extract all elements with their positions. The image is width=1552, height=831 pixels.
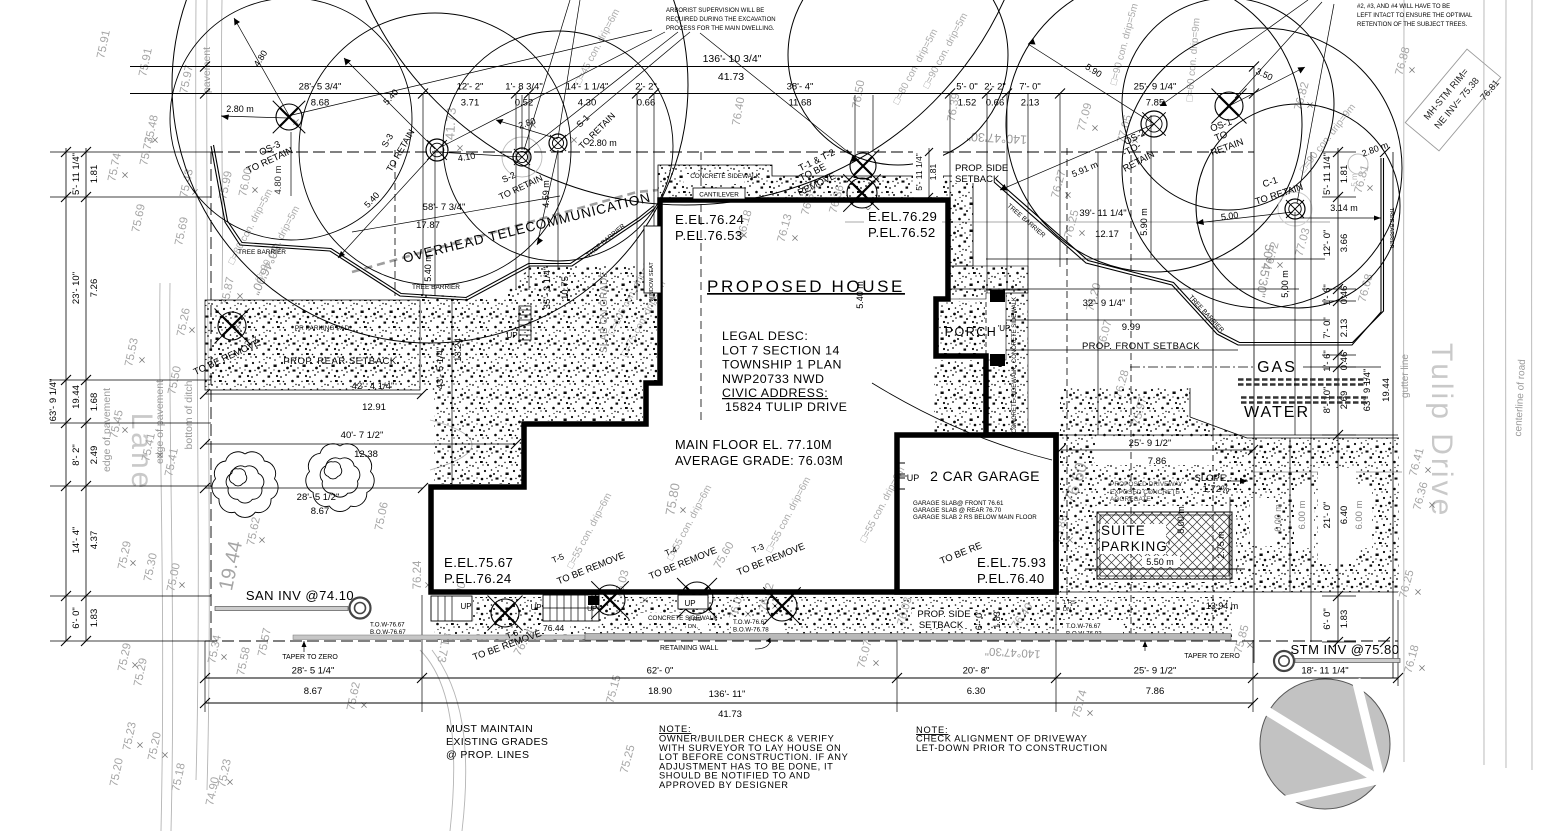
- svg-text:32'- 9 1/4": 32'- 9 1/4": [1083, 298, 1126, 309]
- svg-text:PARKING': PARKING': [1101, 539, 1171, 554]
- svg-text:0.66: 0.66: [986, 98, 1005, 109]
- svg-text:AGGREGATE': AGGREGATE': [1110, 496, 1152, 503]
- svg-text:SLAB ON GRADE: SLAB ON GRADE: [599, 271, 610, 353]
- svg-text:19.44: 19.44: [1381, 378, 1392, 402]
- svg-text:0.52: 0.52: [515, 98, 534, 109]
- svg-text:25'- 9 1/2": 25'- 9 1/2": [1134, 666, 1177, 677]
- svg-text:UP: UP: [530, 603, 541, 612]
- svg-text:1.83: 1.83: [89, 609, 100, 628]
- svg-text:20'- 8": 20'- 8": [963, 666, 990, 677]
- svg-text:12.17: 12.17: [1095, 229, 1119, 240]
- svg-text:1.72%: 1.72%: [1203, 484, 1230, 495]
- svg-text:14'- 4": 14'- 4": [71, 527, 82, 554]
- svg-text:PROP. REAR SETBACK: PROP. REAR SETBACK: [283, 356, 397, 367]
- svg-text:SAN INV @74.10: SAN INV @74.10: [246, 588, 354, 603]
- svg-text:NOTE:: NOTE:: [659, 724, 691, 734]
- svg-text:7.26: 7.26: [89, 279, 100, 298]
- svg-text:6'- 0": 6'- 0": [71, 607, 82, 629]
- svg-text:9.99: 9.99: [1122, 322, 1141, 333]
- svg-text:1.81: 1.81: [928, 163, 938, 180]
- svg-text:LEFT INTACT TO ENSURE THE OPTI: LEFT INTACT TO ENSURE THE OPTIMAL: [1357, 13, 1473, 19]
- svg-text:edge of pavement: edge of pavement: [154, 380, 166, 464]
- svg-text:5'- 11 1/4": 5'- 11 1/4": [1322, 153, 1333, 195]
- svg-text:18'- 11 1/4": 18'- 11 1/4": [1301, 666, 1348, 677]
- svg-text:UP: UP: [907, 473, 920, 483]
- svg-text:P.EL.76.24: P.EL.76.24: [444, 571, 512, 586]
- svg-text:2.75 m: 2.75 m: [1216, 531, 1226, 559]
- svg-text:4.80 m: 4.80 m: [273, 165, 284, 194]
- svg-text:SETBACK: SETBACK: [919, 620, 964, 631]
- svg-text:MAIN FLOOR EL. 77.10M: MAIN FLOOR EL. 77.10M: [675, 437, 832, 452]
- svg-text:1'- 6": 1'- 6": [1322, 284, 1333, 306]
- svg-text:41.73: 41.73: [718, 71, 744, 83]
- svg-text:76.44: 76.44: [543, 623, 565, 633]
- svg-text:1.68: 1.68: [89, 393, 100, 412]
- svg-text:CANTILEVER: CANTILEVER: [699, 192, 739, 199]
- svg-text:42'- 4 1/4": 42'- 4 1/4": [352, 381, 395, 392]
- svg-text:7'- 0": 7'- 0": [1322, 317, 1333, 339]
- svg-text:TREE BARRIER: TREE BARRIER: [238, 249, 286, 256]
- svg-text:6'- 0": 6'- 0": [974, 610, 984, 630]
- svg-text:13.94 m: 13.94 m: [1206, 601, 1239, 611]
- svg-text:15824 TULIP DRIVE: 15824 TULIP DRIVE: [725, 400, 847, 414]
- svg-text:T.O.W-76.67: T.O.W-76.67: [370, 622, 405, 629]
- svg-text:5.90 m: 5.90 m: [1139, 208, 1149, 236]
- svg-text:2 CAR GARAGE: 2 CAR GARAGE: [930, 468, 1040, 484]
- svg-text:CONCRETE SIDEWALK: CONCRETE SIDEWALK: [690, 173, 760, 180]
- svg-text:58'- 7 3/4": 58'- 7 3/4": [423, 202, 466, 213]
- svg-text:WATER: WATER: [1244, 404, 1310, 421]
- svg-text:SLOPE .: SLOPE .: [1195, 473, 1232, 484]
- svg-text:7.86: 7.86: [1146, 686, 1165, 697]
- svg-text:P.EL.76.53: P.EL.76.53: [675, 228, 743, 243]
- svg-text:TREE BARRIER: TREE BARRIER: [412, 284, 460, 291]
- svg-text:AVERAGE GRADE: 76.03M: AVERAGE GRADE: 76.03M: [675, 453, 843, 468]
- svg-text:5.50 m: 5.50 m: [1146, 557, 1174, 567]
- svg-text:8.67: 8.67: [304, 686, 323, 697]
- svg-text:LOT 7 SECTION 14: LOT 7 SECTION 14: [722, 343, 840, 357]
- svg-text:39'- 11 1/4": 39'- 11 1/4": [1079, 208, 1126, 219]
- svg-text:E.EL.76.24: E.EL.76.24: [675, 212, 744, 227]
- svg-text:GARAGE SLAB 2 RS BELOW MAIN F: GARAGE SLAB 2 RS BELOW MAIN FLOOR: [913, 514, 1037, 521]
- svg-text:E.EL.75.67: E.EL.75.67: [444, 555, 513, 570]
- svg-text:E.EL.75.93: E.EL.75.93: [977, 555, 1046, 570]
- svg-text:PROPOSED DRIVEWAY: PROPOSED DRIVEWAY: [1110, 481, 1183, 488]
- svg-text:PROP. SIDE: PROP. SIDE: [917, 609, 970, 620]
- svg-text:B.O.W-76.78: B.O.W-76.78: [733, 627, 769, 634]
- svg-text:DN,: DN,: [688, 624, 698, 630]
- svg-text:CONCRETE SIDEWALK: CONCRETE SIDEWALK: [1012, 297, 1018, 363]
- svg-text:2.13: 2.13: [1021, 98, 1040, 109]
- svg-text:WINDOW SEAT: WINDOW SEAT: [649, 262, 655, 302]
- svg-text:MUST MAINTAIN: MUST MAINTAIN: [446, 723, 533, 735]
- svg-text:bottom of ditch: bottom of ditch: [183, 380, 195, 449]
- svg-text:2'- 2": 2'- 2": [984, 82, 1006, 93]
- svg-text:DN: DN: [1063, 607, 1071, 613]
- svg-text:2.13: 2.13: [1339, 319, 1350, 338]
- svg-text:38'- 4": 38'- 4": [787, 82, 814, 93]
- svg-text:6'- 0": 6'- 0": [1322, 608, 1333, 630]
- svg-text:SUITE: SUITE: [1101, 523, 1146, 538]
- svg-text:0.46: 0.46: [1339, 352, 1350, 371]
- svg-text:gutter line: gutter line: [1400, 354, 1411, 398]
- svg-text:7.86: 7.86: [1148, 456, 1167, 467]
- svg-text:63'- 9 1/4": 63'- 9 1/4": [1362, 369, 1373, 412]
- svg-text:PROCESS FOR THE MAIN DWELLING.: PROCESS FOR THE MAIN DWELLING.: [666, 26, 775, 32]
- svg-text:NWP20733 NWD: NWP20733 NWD: [722, 372, 824, 386]
- svg-text:UP: UP: [587, 606, 597, 613]
- svg-text:6.00 m: 6.00 m: [1297, 500, 1308, 529]
- svg-text:CONCRETE SIDEWALK: CONCRETE SIDEWALK: [1012, 367, 1018, 433]
- svg-text:21'- 0": 21'- 0": [1322, 502, 1333, 529]
- svg-text:5.40 m: 5.40 m: [855, 281, 865, 309]
- svg-text:19.44: 19.44: [71, 385, 82, 409]
- svg-text:10.75: 10.75: [560, 276, 571, 300]
- svg-text:6.40: 6.40: [1339, 506, 1350, 525]
- svg-text:ARBORIST SUPERVISION WILL BE: ARBORIST SUPERVISION WILL BE: [666, 8, 764, 14]
- svg-text:UP: UP: [506, 331, 517, 340]
- svg-text:pavement: pavement: [201, 47, 213, 93]
- svg-text:CIVIC ADDRESS:: CIVIC ADDRESS:: [722, 386, 828, 400]
- svg-text:4.30: 4.30: [578, 98, 597, 109]
- svg-text:35'- 3 1/4": 35'- 3 1/4": [542, 267, 553, 310]
- svg-text:T.O.W-76.67: T.O.W-76.67: [733, 619, 768, 626]
- svg-text:8.00 m: 8.00 m: [1176, 506, 1186, 534]
- svg-text:8'- 10": 8'- 10": [1322, 387, 1333, 414]
- svg-text:1'- 8 3/4": 1'- 8 3/4": [505, 82, 542, 93]
- svg-text:3.71: 3.71: [461, 98, 480, 109]
- svg-text:5,00 m: 5,00 m: [1280, 270, 1290, 298]
- svg-text:3.66: 3.66: [1339, 234, 1350, 253]
- svg-text:43'- 5 1/4": 43'- 5 1/4": [435, 347, 446, 390]
- svg-text:18.90: 18.90: [648, 686, 672, 697]
- svg-text:2.49: 2.49: [89, 446, 100, 465]
- svg-text:5'- 11 1/4": 5'- 11 1/4": [71, 153, 82, 195]
- svg-text:2.80 m: 2.80 m: [226, 104, 254, 114]
- svg-text:1'- 6": 1'- 6": [1322, 350, 1333, 372]
- svg-text:28'- 5 1/4": 28'- 5 1/4": [292, 666, 335, 677]
- svg-text:76.24: 76.24: [412, 560, 424, 589]
- svg-text:8.67: 8.67: [311, 506, 330, 517]
- svg-text:P.EL.76.40: P.EL.76.40: [977, 571, 1045, 586]
- svg-text:14'- 1 1/4": 14'- 1 1/4": [566, 82, 609, 93]
- svg-text:6.00 m: 6.00 m: [1354, 500, 1365, 529]
- svg-text:P.EL.76.52: P.EL.76.52: [868, 225, 936, 240]
- svg-text:13.24: 13.24: [453, 338, 464, 362]
- svg-text:28'- 5 3/4": 28'- 5 3/4": [299, 82, 342, 93]
- svg-text:12'- 2": 12'- 2": [457, 82, 484, 93]
- svg-text:25'- 9 1/2": 25'- 9 1/2": [1129, 438, 1172, 449]
- svg-text:8'- 2": 8'- 2": [71, 444, 82, 466]
- svg-text:12.91: 12.91: [362, 402, 386, 413]
- svg-text:63'- 9 1/4": 63'- 9 1/4": [48, 379, 59, 422]
- svg-text:5'- 11 1/4": 5'- 11 1/4": [914, 153, 924, 191]
- svg-text:#2, #3, AND #4 WILL HAVE TO BE: #2, #3, AND #4 WILL HAVE TO BE: [1357, 4, 1450, 10]
- svg-text:EXISTING GRADES: EXISTING GRADES: [446, 736, 548, 748]
- svg-text:41.73: 41.73: [718, 709, 742, 720]
- svg-text:7'- 0": 7'- 0": [1019, 82, 1041, 93]
- svg-text:GARAGE SLAB @ REAR 76.70: GARAGE SLAB @ REAR 76.70: [913, 507, 1002, 514]
- svg-text:UP: UP: [684, 599, 695, 608]
- svg-text:@ PROP. LINES: @ PROP. LINES: [446, 749, 529, 761]
- svg-text:PORCH: PORCH: [945, 325, 998, 339]
- svg-text:2'- 2": 2'- 2": [635, 82, 657, 93]
- svg-text:LEGAL DESC:: LEGAL DESC:: [722, 329, 808, 343]
- svg-text:STM INV @75.80: STM INV @75.80: [1290, 642, 1399, 657]
- svg-text:Tulip Drive: Tulip Drive: [1425, 343, 1458, 518]
- svg-text:3.14 m: 3.14 m: [1330, 203, 1358, 213]
- svg-text:1.83: 1.83: [1339, 610, 1350, 629]
- svg-text:TAPER TO ZERO: TAPER TO ZERO: [282, 654, 338, 661]
- svg-text:6.00 m: 6.00 m: [1273, 504, 1283, 532]
- svg-text:7.85: 7.85: [1146, 98, 1165, 109]
- svg-text:6.30: 6.30: [967, 686, 986, 697]
- svg-text:E.EL.76.29: E.EL.76.29: [868, 209, 937, 224]
- svg-text:5'- 0": 5'- 0": [956, 82, 978, 93]
- svg-text:1.52: 1.52: [958, 98, 977, 109]
- svg-text:RETENTION OF THE SUBJECT TREES: RETENTION OF THE SUBJECT TREES.: [1357, 22, 1468, 28]
- svg-text:LET-DOWN PRIOR TO CONSTRUCTION: LET-DOWN PRIOR TO CONSTRUCTION: [916, 743, 1108, 753]
- svg-text:EXPOSED CONCRETE: EXPOSED CONCRETE: [1110, 489, 1180, 496]
- svg-text:2.69: 2.69: [1339, 391, 1350, 410]
- svg-text:GAS: GAS: [1257, 359, 1297, 376]
- svg-text:0.46: 0.46: [1339, 286, 1350, 305]
- svg-text:12'- 0": 12'- 0": [1322, 230, 1333, 257]
- svg-text:RETAINING WALL: RETAINING WALL: [660, 645, 718, 652]
- svg-text:1.83: 1.83: [992, 611, 1002, 629]
- svg-text:5 m: 5 m: [1350, 173, 1359, 187]
- svg-text:1.81: 1.81: [89, 165, 100, 184]
- svg-text:SETBACK: SETBACK: [955, 174, 1000, 185]
- svg-text:GARAGE SLAB@ FRONT 76.61: GARAGE SLAB@ FRONT 76.61: [913, 500, 1004, 507]
- svg-text:TAPER TO ZERO: TAPER TO ZERO: [1184, 653, 1240, 660]
- svg-text:41.73: 41.73: [442, 107, 459, 140]
- svg-text:23'- 10": 23'- 10": [71, 272, 82, 304]
- svg-text:1 RS: 1 RS: [1063, 600, 1076, 606]
- svg-text:UP: UP: [460, 602, 471, 611]
- svg-text:APPROVED BY DESIGNER: APPROVED BY DESIGNER: [659, 780, 789, 790]
- svg-text:REQUIRED DURING THE EXCAVATION: REQUIRED DURING THE EXCAVATION: [666, 17, 776, 23]
- svg-text:12.38: 12.38: [354, 449, 378, 460]
- svg-text:PR PARKING PAD: PR PARKING PAD: [295, 325, 350, 332]
- svg-text:T.O.W-76.67: T.O.W-76.67: [1066, 623, 1101, 630]
- svg-text:4.37: 4.37: [89, 531, 100, 550]
- svg-text:40'- 7 1/2": 40'- 7 1/2": [341, 430, 384, 441]
- svg-text:TOWNSHIP 1 PLAN: TOWNSHIP 1 PLAN: [722, 358, 842, 372]
- svg-text:PROPOSED HOUSE: PROPOSED HOUSE: [707, 277, 905, 296]
- svg-text:62'- 0": 62'- 0": [647, 666, 674, 677]
- svg-text:25'- 9 1/4": 25'- 9 1/4": [1134, 82, 1177, 93]
- svg-text:0.66: 0.66: [637, 98, 656, 109]
- svg-text:1.81: 1.81: [1339, 165, 1350, 184]
- svg-text:PROP. SIDE: PROP. SIDE: [955, 163, 1008, 174]
- svg-text:CONCRETE SIDEWALK: CONCRETE SIDEWALK: [648, 615, 718, 622]
- svg-text:'UP: 'UP: [998, 324, 1011, 333]
- svg-text:5.40 m: 5.40 m: [423, 254, 433, 282]
- svg-text:136'- 11": 136'- 11": [709, 689, 746, 700]
- svg-text:17.87: 17.87: [416, 220, 440, 231]
